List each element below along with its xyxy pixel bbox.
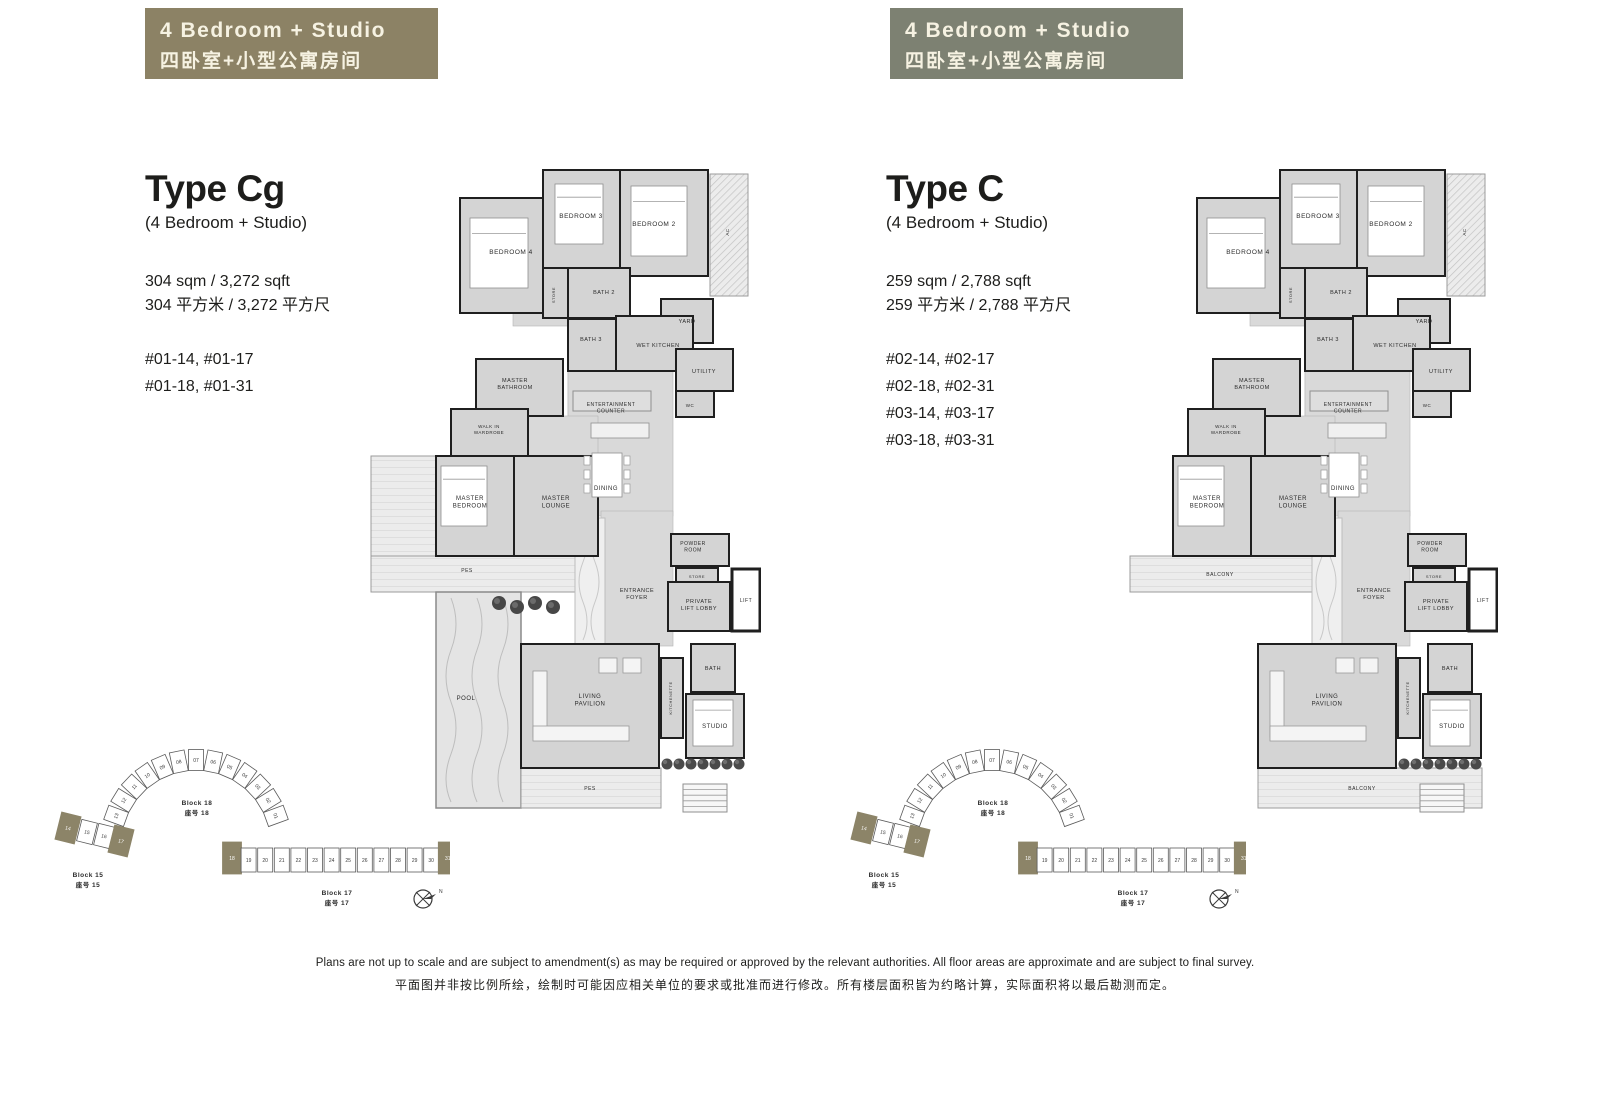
block-label-zh: 座号 18 — [184, 808, 210, 817]
room-label-lift: LIFT — [740, 598, 752, 604]
room-label-store2: STORE — [689, 574, 705, 579]
disclaimer-en: Plans are not up to scale and are subjec… — [0, 957, 1570, 969]
furniture-armchair — [1336, 658, 1354, 673]
room-label-utility: UTILITY — [692, 369, 716, 375]
room-wc — [1413, 391, 1451, 417]
keyplan-unit-number: 22 — [1092, 858, 1098, 864]
room-bath3 — [568, 319, 616, 371]
floorplan-svg: BEDROOM 4BEDROOM 3BEDROOM 2STOREBATH 2YA… — [363, 166, 761, 821]
room-label-private_lift_lobby: PRIVATELIFT LOBBY — [681, 599, 717, 612]
furniture-bed — [693, 700, 733, 746]
room-label-wet_kitchen: WET KITCHEN — [636, 343, 679, 349]
keyplan-unit-number: 18 — [229, 856, 235, 862]
furniture-chair — [1361, 484, 1367, 493]
furniture-armchair — [623, 658, 641, 673]
outdoor-pes-side — [371, 456, 436, 558]
room-label-private_lift_lobby: PRIVATELIFT LOBBY — [1418, 599, 1454, 612]
open-area — [601, 511, 673, 646]
keyplan-unit-number: 20 — [1058, 858, 1064, 864]
floor-plan-page: 4 Bedroom + Studio 四卧室+小型公寓房间 Type Cg (4… — [0, 0, 1600, 1112]
key-plan: 0102030405060708091011121314151617181920… — [846, 727, 1246, 924]
room-label-master_lounge: MASTERLOUNGE — [1279, 496, 1307, 510]
room-label-master_bathroom: MASTERBATHROOM — [1234, 378, 1269, 391]
keyplan-unit-number: 23 — [312, 858, 318, 864]
furniture-chair — [584, 470, 590, 479]
key-plan: 0102030405060708091011121314151617181920… — [50, 727, 450, 924]
stairs — [683, 784, 727, 812]
keyplan-unit-number: 26 — [362, 858, 368, 864]
furniture-armchair — [599, 658, 617, 673]
room-label-bath: BATH — [1442, 666, 1458, 672]
unit-type-badge: 4 Bedroom + Studio 四卧室+小型公寓房间 — [890, 8, 1183, 79]
badge-title-zh: 四卧室+小型公寓房间 — [160, 46, 438, 73]
compass-north-label: N — [439, 889, 443, 895]
room-label-dining: DINING — [1331, 486, 1355, 492]
room-label-bath2: BATH 2 — [593, 290, 615, 296]
room-label-kitchenette: KITCHENETTE — [1405, 681, 1410, 714]
room-label-bedroom3: BEDROOM 3 — [1296, 213, 1340, 220]
keyplan-unit-number: 29 — [1208, 858, 1214, 864]
room-label-utility: UTILITY — [1429, 369, 1453, 375]
room-label-lift: LIFT — [1477, 598, 1489, 604]
keyplan-unit-number: 28 — [395, 858, 401, 864]
outdoor-label-bottom: BALCONY — [1348, 786, 1376, 792]
furniture-sofa — [533, 726, 629, 741]
disclaimer: Plans are not up to scale and are subjec… — [0, 957, 1570, 993]
block-label-zh: 座号 15 — [871, 880, 897, 889]
room-label-bath2: BATH 2 — [1330, 290, 1352, 296]
room-label-kitchenette: KITCHENETTE — [668, 681, 673, 714]
room-label-bedroom3: BEDROOM 3 — [559, 213, 603, 220]
keyplan-unit-number: 30 — [428, 858, 434, 864]
furniture-armchair — [1360, 658, 1378, 673]
keyplan-unit-number: 24 — [329, 858, 335, 864]
block-label-en: Block 17 — [1118, 890, 1149, 897]
furniture-chair — [1361, 456, 1367, 465]
keyplan-unit-number: 26 — [1158, 858, 1164, 864]
compass-icon: N — [1210, 889, 1239, 908]
counter-island — [1328, 423, 1386, 438]
block-label-zh: 座号 17 — [1120, 898, 1146, 907]
keyplan-unit-number: 31 — [1241, 856, 1246, 862]
keyplan-unit-number: 20 — [262, 858, 268, 864]
keyplan-unit-number: 24 — [1125, 858, 1131, 864]
keyplan-unit-number: 30 — [1224, 858, 1230, 864]
furniture-bed — [1430, 700, 1470, 746]
room-label-dining: DINING — [594, 486, 618, 492]
furniture-chair — [1321, 456, 1327, 465]
room-label-bedroom4: BEDROOM 4 — [1226, 249, 1270, 256]
furniture-sofa — [1270, 726, 1366, 741]
room-label-living_pavilion: LIVINGPAVILION — [1312, 694, 1343, 708]
room-label-wet_kitchen: WET KITCHEN — [1373, 343, 1416, 349]
room-label-ac: AC — [725, 228, 730, 236]
room-label-studio: STUDIO — [702, 724, 728, 730]
keyplan-unit-number: 07 — [193, 758, 199, 764]
block-label-en: Block 18 — [978, 800, 1009, 807]
room-label-bedroom2: BEDROOM 2 — [632, 221, 676, 228]
compass-north-label: N — [1235, 889, 1239, 895]
furniture-chair — [584, 456, 590, 465]
floorplan-svg: BEDROOM 4BEDROOM 3BEDROOM 2STOREBATH 2YA… — [1100, 166, 1498, 821]
keyplan-unit-number: 31 — [445, 856, 450, 862]
badge-title-zh: 四卧室+小型公寓房间 — [905, 46, 1183, 73]
furniture-chair — [1321, 470, 1327, 479]
room-label-walk_in_wardrobe: WALK INWARDROBE — [474, 424, 504, 435]
keyplan-unit-number: 22 — [296, 858, 302, 864]
room-label-ac: AC — [1462, 228, 1467, 236]
room-label-bedroom2: BEDROOM 2 — [1369, 221, 1413, 228]
open-area — [1338, 511, 1410, 646]
room-label-master_bathroom: MASTERBATHROOM — [497, 378, 532, 391]
outdoor-label-bottom: PES — [584, 786, 596, 792]
keyplan-unit-number: 21 — [1075, 858, 1081, 864]
keyplan-unit-number: 18 — [1025, 856, 1031, 862]
block-label-en: Block 18 — [182, 800, 213, 807]
keyplan-unit-number: 23 — [1108, 858, 1114, 864]
disclaimer-zh: 平面图并非按比例所绘，绘制时可能因应相关单位的要求或批准而进行修改。所有楼层面积… — [0, 976, 1570, 993]
furniture-chair — [624, 470, 630, 479]
keyplan-unit-number: 21 — [279, 858, 285, 864]
badge-title-en: 4 Bedroom + Studio — [160, 19, 438, 43]
keyplan-unit-number: 27 — [1175, 858, 1181, 864]
block-label-zh: 座号 18 — [980, 808, 1006, 817]
room-label-walk_in_wardrobe: WALK INWARDROBE — [1211, 424, 1241, 435]
room-label-wc: WC — [686, 403, 695, 408]
room-bath3 — [1305, 319, 1353, 371]
room-label-studio: STUDIO — [1439, 724, 1465, 730]
furniture-chair — [624, 484, 630, 493]
room-label-master_bedroom: MASTERBEDROOM — [1190, 496, 1225, 510]
keyplan-unit-number: 25 — [345, 858, 351, 864]
keyplan-unit-number: 28 — [1191, 858, 1197, 864]
keyplan-unit-number: 19 — [246, 858, 252, 864]
badge-title-en: 4 Bedroom + Studio — [905, 19, 1183, 43]
stairs — [1420, 784, 1464, 812]
keyplan-unit-number: 29 — [412, 858, 418, 864]
keyplan-unit-number: 07 — [989, 758, 995, 764]
room-label-store: STORE — [1288, 287, 1293, 303]
counter-island — [591, 423, 649, 438]
furniture-chair — [1321, 484, 1327, 493]
keyplan-unit-number: 19 — [1042, 858, 1048, 864]
block-label-en: Block 15 — [73, 872, 104, 879]
outdoor-label-side: BALCONY — [1206, 572, 1234, 578]
room-label-bath3: BATH 3 — [580, 337, 602, 343]
room-label-yard: YARD — [679, 319, 696, 325]
unit-type-badge: 4 Bedroom + Studio 四卧室+小型公寓房间 — [145, 8, 438, 79]
room-wc — [676, 391, 714, 417]
room-label-store: STORE — [551, 287, 556, 303]
outdoor-label-side: PES — [461, 568, 473, 574]
pool-label: POOL — [457, 696, 476, 702]
room-label-bedroom4: BEDROOM 4 — [489, 249, 533, 256]
furniture-chair — [584, 484, 590, 493]
room-label-yard: YARD — [1416, 319, 1433, 325]
room-label-bath3: BATH 3 — [1317, 337, 1339, 343]
keyplan-svg: 0102030405060708091011121314151617181920… — [50, 727, 450, 919]
furniture-chair — [624, 456, 630, 465]
keyplan-svg: 0102030405060708091011121314151617181920… — [846, 727, 1246, 919]
room-label-living_pavilion: LIVINGPAVILION — [575, 694, 606, 708]
room-label-wc: WC — [1423, 403, 1432, 408]
room-label-master_lounge: MASTERLOUNGE — [542, 496, 570, 510]
keyplan-unit-number: 25 — [1141, 858, 1147, 864]
block-label-zh: 座号 17 — [324, 898, 350, 907]
room-label-master_bedroom: MASTERBEDROOM — [453, 496, 488, 510]
block-label-zh: 座号 15 — [75, 880, 101, 889]
block-label-en: Block 17 — [322, 890, 353, 897]
outdoor-pes-terrace — [371, 556, 595, 592]
block-label-en: Block 15 — [869, 872, 900, 879]
compass-icon: N — [414, 889, 443, 908]
keyplan-unit-number: 27 — [379, 858, 385, 864]
furniture-chair — [1361, 470, 1367, 479]
room-label-store2: STORE — [1426, 574, 1442, 579]
room-label-bath: BATH — [705, 666, 721, 672]
